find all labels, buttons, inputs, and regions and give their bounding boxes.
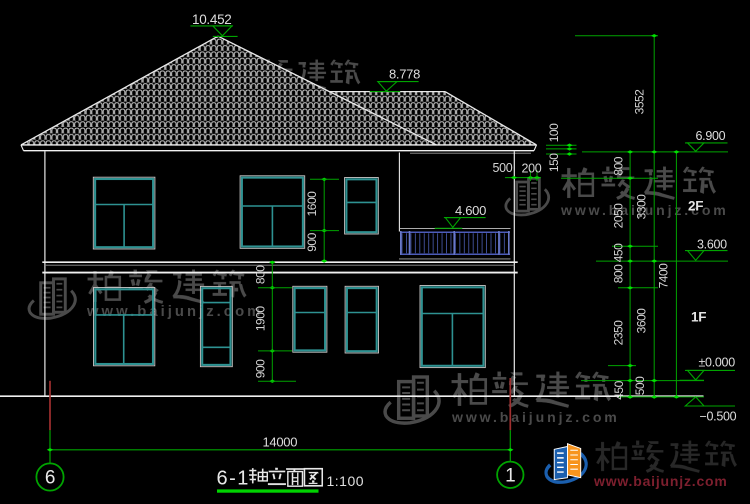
svg-text:1: 1: [505, 465, 515, 486]
svg-text:www.baijunjz.com: www.baijunjz.com: [86, 304, 263, 320]
svg-text:www.baijunjz.com: www.baijunjz.com: [593, 473, 728, 489]
svg-text:14000: 14000: [263, 435, 298, 450]
svg-text:6: 6: [45, 468, 55, 489]
svg-text:1600: 1600: [305, 191, 319, 217]
svg-text:±0.000: ±0.000: [699, 356, 736, 370]
svg-text:4.600: 4.600: [455, 203, 486, 218]
svg-text:6-1: 6-1: [217, 468, 250, 490]
svg-text:500: 500: [493, 161, 513, 175]
svg-text:2F: 2F: [688, 199, 703, 214]
svg-text:1900: 1900: [253, 306, 267, 332]
svg-text:150: 150: [547, 153, 561, 172]
svg-text:1:100: 1:100: [327, 473, 365, 489]
svg-text:100: 100: [547, 123, 561, 142]
svg-text:10.452: 10.452: [192, 12, 232, 27]
svg-text:800: 800: [612, 264, 626, 283]
svg-text:1F: 1F: [691, 310, 706, 325]
svg-text:3300: 3300: [635, 194, 649, 220]
svg-text:800: 800: [612, 156, 626, 175]
svg-text:800: 800: [253, 265, 267, 284]
svg-text:450: 450: [612, 380, 626, 399]
svg-text:3600: 3600: [635, 308, 649, 334]
svg-text:6.900: 6.900: [696, 129, 726, 143]
svg-text:www.baijunjz.com: www.baijunjz.com: [451, 409, 620, 425]
svg-text:900: 900: [305, 232, 319, 251]
svg-text:3.600: 3.600: [697, 238, 727, 252]
svg-text:200: 200: [522, 162, 542, 176]
svg-text:450: 450: [612, 243, 626, 262]
svg-text:2350: 2350: [612, 320, 626, 346]
svg-text:8.778: 8.778: [389, 67, 420, 82]
svg-text:500: 500: [633, 376, 647, 395]
svg-text:3552: 3552: [633, 89, 647, 115]
svg-text:2050: 2050: [612, 203, 626, 229]
svg-text:900: 900: [253, 359, 267, 378]
svg-text:−0.500: −0.500: [700, 410, 737, 424]
svg-text:7400: 7400: [656, 263, 670, 289]
